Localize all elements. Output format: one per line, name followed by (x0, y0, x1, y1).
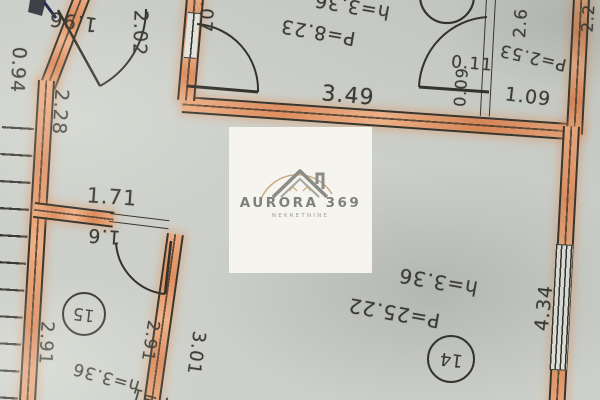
dim-0-94: 0.94 (6, 46, 30, 93)
dim-3-49: 3.49 (321, 81, 376, 111)
room14-number-circle: 14 (427, 335, 475, 383)
door-arc-1-6 (116, 243, 165, 294)
dim-1-07: 1.07 (194, 0, 218, 34)
dim-2-28: 2.28 (47, 88, 72, 136)
door-arc-1-07 (197, 24, 258, 92)
room15-number-circle: 15 (62, 292, 106, 336)
watermark-panel: AURORA 369 NEKRETNINE (229, 127, 372, 273)
door-leaf-1-07 (187, 86, 258, 92)
watermark-brand: AURORA 369 (229, 195, 372, 211)
door-leaf-1-6 (165, 241, 171, 294)
room15-number: 15 (72, 303, 96, 325)
dim-0-09: 0.09 (450, 67, 472, 108)
pen-mark (28, 0, 46, 16)
dim-1-6: 1.6 (87, 224, 122, 248)
dim-2-6: 2.6 (510, 7, 532, 38)
dim-2-02: 2.02 (128, 9, 152, 56)
watermark-tagline: NEKRETNINE (229, 213, 372, 219)
dim-2-2: 2.2 (578, 3, 599, 33)
room14-number: 14 (438, 347, 463, 371)
floor-plan-photo: 1.96 0.94 2.28 2.02 1.07 P=8.23 h=3.36 3… (0, 0, 600, 400)
dim-1-71: 1.71 (86, 183, 138, 210)
room-number-circle-clipped (420, 0, 474, 23)
dim-2-91-left: 2.91 (34, 320, 57, 365)
